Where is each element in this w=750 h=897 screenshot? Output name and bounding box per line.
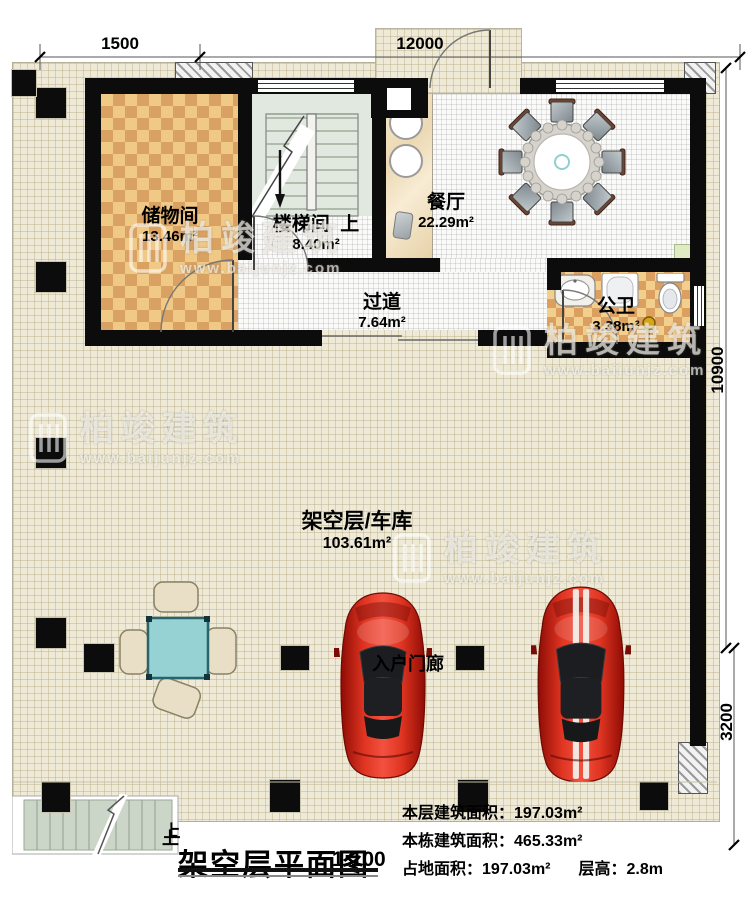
column — [42, 782, 70, 812]
column — [36, 438, 66, 468]
label-dining: 餐厅 22.29m² — [398, 192, 494, 232]
wall-corridor-bottom-left — [85, 330, 322, 346]
exterior-stairs — [12, 794, 182, 858]
car-left — [332, 590, 434, 780]
column — [270, 780, 300, 812]
label-stairwell: 楼梯间 上 8.40m² — [258, 214, 374, 254]
label-garage: 架空层/车库 103.61m² — [267, 510, 447, 554]
dim-10900: 10900 — [708, 330, 728, 410]
title-underline-thin — [178, 875, 378, 877]
column — [84, 644, 114, 672]
stat-floor-area: 本层建筑面积：197.03m² — [402, 800, 747, 828]
dim-1500: 1500 — [60, 34, 180, 54]
column — [36, 262, 66, 292]
chair — [151, 676, 203, 721]
chair — [206, 628, 236, 674]
floor-plan: 1500 12000 10900 3200 储物间 13.46m² 楼梯间 上 … — [0, 0, 750, 897]
car-right — [530, 584, 632, 784]
square-table — [148, 618, 208, 678]
stair-up-label: 上 — [340, 214, 359, 235]
car-roof — [364, 678, 402, 716]
wall-bathroom-top — [547, 258, 706, 272]
title-underline — [178, 868, 378, 872]
title-up-label: 上 — [162, 824, 179, 849]
windshield — [557, 643, 606, 682]
column — [281, 646, 309, 670]
dim-12000: 12000 — [360, 34, 480, 54]
entry-door-column-hole — [387, 88, 411, 110]
window-dining — [556, 80, 664, 92]
column — [36, 88, 66, 118]
stat-footprint-and-height: 占地面积：197.03m² 层高：2.8m — [402, 856, 747, 884]
dining-table-set — [494, 94, 630, 230]
wall-right-garage — [690, 358, 706, 746]
dim-3200: 3200 — [717, 687, 737, 757]
window-right-wall — [694, 286, 704, 326]
stats-block: 本层建筑面积：197.03m² 本栋建筑面积：465.33m² 占地面积：197… — [402, 800, 747, 884]
dining-corridor-opening-floor — [440, 258, 547, 272]
column — [36, 618, 66, 648]
wall-corridor-bottom-right — [478, 330, 547, 346]
wall-bathroom-bottom — [547, 342, 706, 358]
wall-left — [85, 78, 101, 346]
label-entry-porch: 入户门廊 — [348, 654, 468, 675]
stairwell-stairs — [252, 94, 372, 224]
chair — [154, 582, 198, 612]
chair — [120, 630, 148, 674]
counter-basin-icon — [389, 144, 423, 178]
label-storage: 储物间 13.46m² — [110, 206, 230, 246]
column — [12, 70, 36, 96]
wall-corridor-top — [307, 258, 440, 272]
label-corridor: 过道 7.64m² — [330, 292, 434, 332]
car-roof — [561, 678, 602, 719]
wall-hatch-bottomright — [678, 742, 708, 794]
wall-stair-dining — [372, 94, 386, 272]
wall-bathroom-left-stub — [547, 272, 561, 290]
label-bathroom: 公卫 3.38m² — [570, 296, 662, 336]
garden-table-set — [116, 578, 240, 732]
stat-building-area: 本栋建筑面积：465.33m² — [402, 828, 747, 856]
window-stairwell — [258, 80, 354, 92]
wall-storage-stair — [238, 94, 252, 260]
